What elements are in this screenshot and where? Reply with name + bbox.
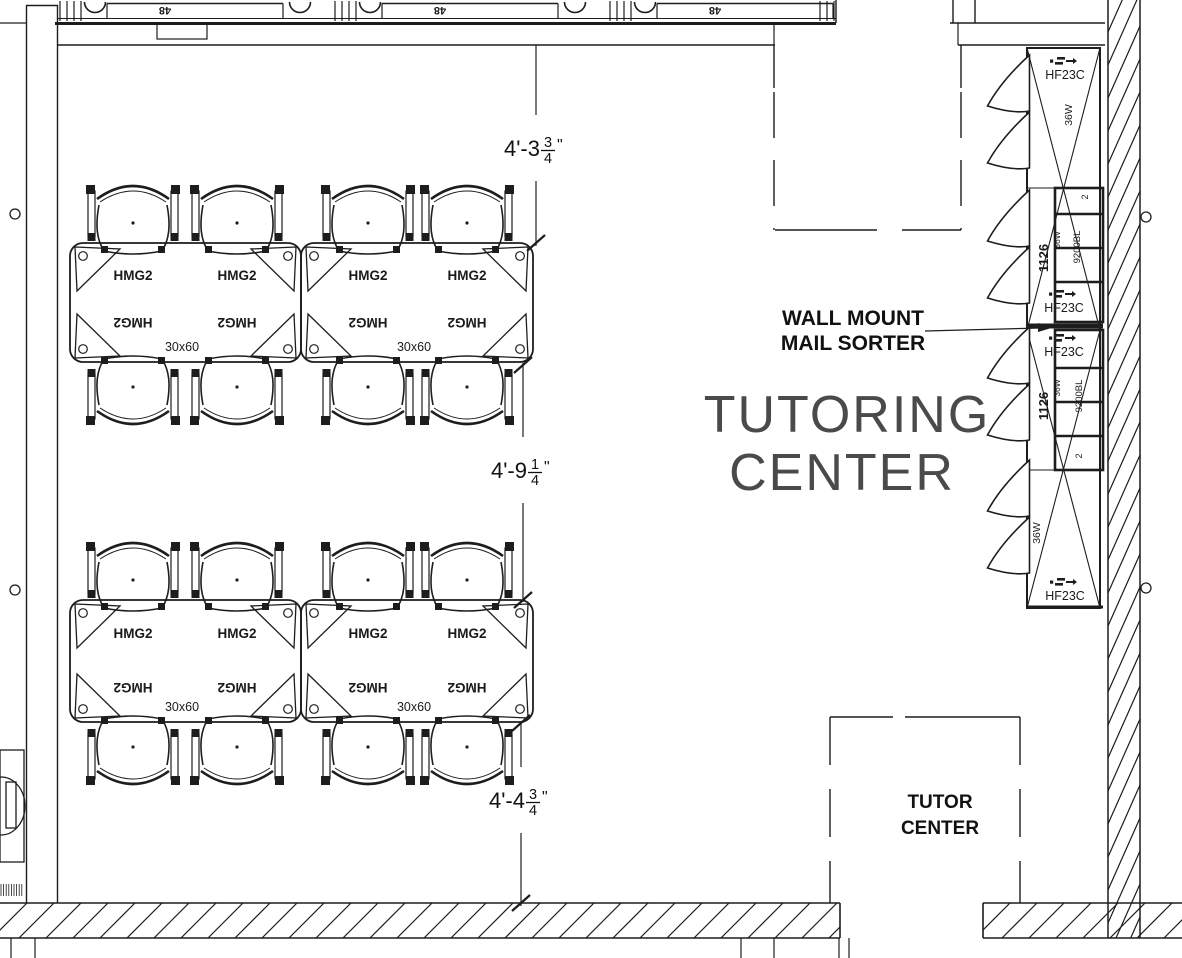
dimension-fraction-numerator: 3 — [544, 135, 552, 151]
sorter-unit-label: HF23C — [1044, 345, 1084, 359]
table-size-label: 30x60 — [165, 340, 199, 354]
tutor-box-label-line2: CENTER — [901, 818, 979, 839]
sorter-model-label: 1126 — [1036, 392, 1051, 420]
mail-sorter-unit — [988, 48, 1104, 608]
floor-plan-drawing: 48484830x6030x6030x6030x60HMG2HMG2HMG2HM… — [0, 0, 1182, 958]
carrel-size-label: 48 — [434, 4, 446, 16]
dimensions: 4'-334"4'-914"4'-434" — [489, 45, 563, 911]
sorter-bin-label: 9200BL — [1072, 231, 1083, 264]
door-knob-circle — [1141, 583, 1151, 593]
drinking-fountain — [0, 750, 25, 896]
room-name-line2: CENTER — [729, 444, 955, 502]
sorter-door-leaf — [988, 517, 1030, 574]
chair-model-label: HMG2 — [217, 626, 256, 641]
dimension-value: 4'-3 — [504, 136, 540, 161]
room-name-line1: TUTORING — [704, 386, 991, 444]
chair-model-label: HMG2 — [447, 626, 486, 641]
sorter-slot-label: 2 — [1080, 194, 1090, 199]
sorter-unit-label: HF23C — [1045, 589, 1085, 603]
sorter-icon — [1049, 334, 1076, 342]
sorter-door-leaf — [988, 247, 1030, 304]
sorter-icon — [1050, 578, 1077, 586]
chair-model-label: HMG2 — [217, 680, 256, 695]
sorter-door-leaf — [988, 384, 1030, 441]
sorter-door-leaf — [988, 460, 1030, 517]
chair — [420, 716, 514, 785]
mail-sorter-annotation-line2: MAIL SORTER — [781, 332, 925, 355]
dimension-fraction-numerator: 3 — [529, 787, 537, 803]
chair-model-label: HMG2 — [348, 315, 387, 330]
dimension-value: 4'-4 — [489, 788, 525, 813]
chair — [86, 356, 180, 425]
chair — [420, 356, 514, 425]
sorter-slot-label: 2 — [1074, 453, 1084, 458]
sorter-door-leaf — [988, 112, 1030, 169]
sorter-width-label: 36W — [1063, 104, 1075, 126]
sorter-icon — [1049, 290, 1076, 298]
carrel-size-label: 48 — [159, 4, 171, 16]
floor-plan: 48484830x6030x6030x6030x60HMG2HMG2HMG2HM… — [0, 0, 1182, 958]
chair — [86, 716, 180, 785]
chair-model-label: HMG2 — [217, 315, 256, 330]
linework: 48484830x6030x6030x6030x60HMG2HMG2HMG2HM… — [0, 0, 1182, 958]
table-size-label: 30x60 — [165, 700, 199, 714]
dimension-text: 4'-914" — [491, 457, 550, 489]
mail-sorter-annotation-line1: WALL MOUNT — [782, 307, 924, 330]
door-knob-circle — [10, 585, 20, 595]
dimension-fraction-numerator: 1 — [531, 457, 539, 473]
tables — [70, 243, 533, 722]
chair-model-label: HMG2 — [113, 626, 152, 641]
chair-model-label: HMG2 — [447, 315, 486, 330]
chair-model-label: HMG2 — [113, 268, 152, 283]
chair-model-label: HMG2 — [447, 680, 486, 695]
chair-model-label: HMG2 — [113, 315, 152, 330]
chair — [321, 356, 415, 425]
sorter-door-leaf — [988, 55, 1030, 112]
chair-model-label: HMG2 — [348, 680, 387, 695]
dimension-text: 4'-334" — [504, 135, 563, 167]
door-knob-circle — [10, 209, 20, 219]
door-knob-circle — [1141, 212, 1151, 222]
table-size-label: 30x60 — [397, 340, 431, 354]
dimension-text: 4'-434" — [489, 787, 548, 819]
sorter-unit-label: HF23C — [1045, 68, 1085, 82]
dimension-fraction-denominator: 4 — [529, 803, 537, 819]
dimension-unit: " — [542, 789, 548, 806]
tutor-box-label-line1: TUTOR — [907, 792, 972, 813]
table-size-label: 30x60 — [397, 700, 431, 714]
chair — [321, 716, 415, 785]
chair-model-label: HMG2 — [447, 268, 486, 283]
chair-model-label: HMG2 — [217, 268, 256, 283]
sorter-width-label: 36W — [1052, 231, 1062, 248]
sorter-door-leaf — [988, 327, 1030, 384]
chair-model-label: HMG2 — [113, 680, 152, 695]
sorter-icon — [1050, 57, 1077, 65]
dimension-unit: " — [544, 459, 550, 476]
dimension-fraction-denominator: 4 — [544, 151, 552, 167]
sorter-model-label: 1126 — [1036, 244, 1051, 272]
chair — [190, 716, 284, 785]
dimension-value: 4'-9 — [491, 458, 527, 483]
sorter-width-label: 36W — [1052, 379, 1062, 396]
sorter-bin-label: 9200BL — [1074, 380, 1085, 413]
sorter-width-label: 36W — [1031, 522, 1043, 544]
carrel-size-label: 48 — [709, 4, 721, 16]
chair — [190, 356, 284, 425]
sorter-unit-label: HF23C — [1044, 301, 1084, 315]
chair-model-label: HMG2 — [348, 268, 387, 283]
sorter-door-leaf — [988, 190, 1030, 247]
dimension-fraction-denominator: 4 — [531, 473, 539, 489]
dimension-unit: " — [557, 137, 563, 154]
chair-model-label: HMG2 — [348, 626, 387, 641]
